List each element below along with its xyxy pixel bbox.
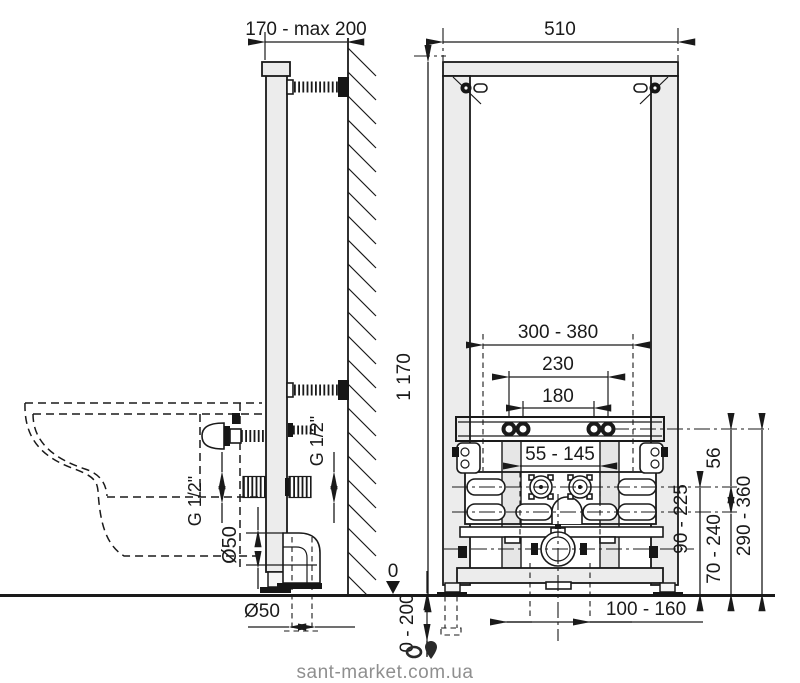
bolt-spacing-outer-label: 230	[542, 354, 574, 375]
drain-arch-cutout	[552, 497, 582, 524]
frame-width-label: 510	[544, 19, 576, 40]
floor-zero-label: 0	[388, 561, 399, 582]
frame-height-label: 1 170	[394, 353, 415, 401]
technical-drawing-page: G 1/2" G 1/2" Ø50 Ø50	[0, 0, 800, 683]
water-height-label: 90 - 225	[671, 484, 692, 554]
rail-to-water-label: 56	[704, 447, 725, 468]
post-bolt-right	[649, 546, 658, 558]
frame-top-bar	[443, 62, 678, 76]
bolt-height-label: 290 - 360	[734, 476, 755, 556]
water-thread-right-label: G 1/2"	[307, 416, 327, 466]
elbow-base-plate	[277, 583, 322, 589]
frame-bottom-rail	[457, 568, 663, 583]
post-bolt-left	[458, 546, 467, 558]
drain-height-label: 70 - 240	[704, 514, 725, 584]
water-fitting-right	[285, 477, 311, 498]
bolt-spacing-inner-label: 180	[542, 386, 574, 407]
water-adjust-label: 55 - 145	[525, 444, 595, 465]
page-background	[0, 0, 800, 683]
bracket-range-label: 300 - 380	[518, 322, 598, 343]
bidet-frame-installation-drawing: G 1/2" G 1/2" Ø50 Ø50	[0, 0, 800, 683]
water-thread-left-label: G 1/2"	[185, 476, 205, 526]
drain-offset-label: 100 - 160	[606, 599, 686, 620]
wall-offset-label: 170 - max 200	[245, 19, 366, 40]
feet-adjust-label: 0 - 200	[397, 593, 418, 652]
drain-pipe-side-label: Ø50	[219, 526, 241, 564]
drain-pipe-bottom-label: Ø50	[244, 601, 280, 622]
watermark-text: sant-market.com.ua	[297, 662, 474, 683]
